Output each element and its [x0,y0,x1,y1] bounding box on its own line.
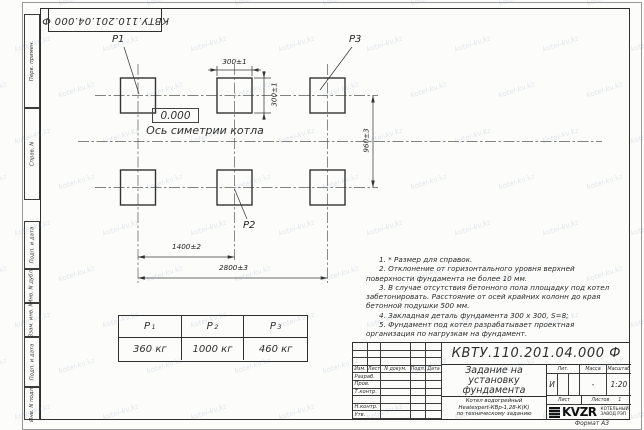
sig-row-nkontr: Н.контр. [353,404,381,412]
sig-row-razrab: Разраб. [353,373,381,381]
sig-cell [411,396,426,404]
company-logo-cell: KVZR КОТЕЛЬНЫЙ ЗАВОД РЭП [547,405,631,419]
doc-subtitle-line: Котел водогрейный [466,398,523,405]
revision-cell [411,343,426,351]
revision-cell [368,343,381,351]
sig-cell [381,389,411,397]
doc-title-line: установку [468,376,519,386]
sheets-label: Листов [591,398,609,403]
sig-row-tkontr: Т.контр. [353,389,381,397]
doc-subtitle-line: Heatexpert-КВр-1,28-К(К) [458,405,529,412]
load-symbol: Р [207,321,213,332]
revision-cell [426,351,442,359]
load-table-value-cell: 460 кг [244,338,307,360]
sheet-count-row: Лист Листов 1 [547,396,631,405]
dim-label-pad-width: 300±1 [207,57,262,66]
pad-label-p1: Р1 [112,34,124,45]
note-item: 1. * Размер для справок. [366,255,624,264]
load-table-header-cell: Р3 [244,316,307,338]
load-symbol-sub: 3 [277,323,281,331]
lit-value-cell: И [547,374,558,395]
revision-table: Изм. Лист N докум. Подп. Дата Разраб. Пр… [353,343,442,419]
kvzr-logo-text: KVZR [562,405,597,419]
sig-row-utv: Утв. [353,411,381,419]
sig-row-empty [353,396,381,404]
notes-block: 1. * Размер для справок. 2. Отклонение о… [366,255,624,339]
drawing-sheet: Перв. примен. Справ. N Подп. и дата Инв.… [0,0,644,430]
column-header-data: Дата [426,366,442,374]
sig-row-prov: Пров. [353,381,381,389]
sig-cell [381,396,411,404]
sig-cell [426,396,442,404]
load-table: Р1 Р2 Р3 360 кг 1000 кг 460 кг [118,315,308,362]
pad-label-p3: Р3 [349,34,361,45]
load-symbol-sub: 2 [214,323,218,331]
sig-cell [426,404,442,412]
sig-cell [411,389,426,397]
column-header-list: Лист [368,366,381,374]
sheets-value: 1 [618,398,621,403]
axis-of-symmetry-label: Ось симетрии котла [130,124,280,137]
format-label: Формат А3 [552,420,632,427]
dim-label-pad-height: 300±1 [270,68,279,122]
sig-cell [411,404,426,412]
load-table-header-cell: Р1 [119,316,182,338]
revision-cell [381,343,411,351]
sig-cell [381,411,411,419]
column-header-podp: Подп. [411,366,426,374]
company-name-line: ЗАВОД РЭП [601,412,629,417]
column-header-ndokum: N докум. [381,366,411,374]
level-mark-box: 0.000 [152,108,199,123]
load-symbol: Р [144,321,150,332]
revision-cell [411,351,426,359]
revision-cell [353,343,368,351]
revision-cell [426,343,442,351]
sig-cell [411,373,426,381]
title-block: Изм. Лист N докум. Подп. Дата Разраб. Пр… [352,342,630,420]
sig-cell [426,381,442,389]
dim-label-total-span: 2800±3 [206,263,261,272]
revision-cell [368,358,381,366]
sig-cell [426,411,442,419]
note-item: 3. В случае отсутствия бетонного пола пл… [366,283,624,311]
pad-label-p2: Р2 [243,220,255,231]
lit-mass-scale-values: И - 1:20 [547,374,631,396]
scale-label: Масштаб [607,365,631,373]
load-table-value-cell: 1000 кг [182,338,245,360]
dim-label-col-spacing: 1400±2 [159,242,214,251]
revision-cell [381,358,411,366]
sig-cell [381,404,411,412]
load-table-header-cell: Р2 [182,316,245,338]
revision-cell [368,351,381,359]
revision-cell [353,358,368,366]
dim-label-row-spacing: 960±3 [362,114,371,168]
doc-subtitle-line: по техническому заданию [457,411,532,418]
scale-value-cell: 1:20 [607,374,631,395]
load-symbol: Р [270,321,276,332]
load-symbol-sub: 1 [152,323,156,331]
doc-title-line: Задание на [465,366,523,376]
sig-cell [411,381,426,389]
sig-cell [426,389,442,397]
doc-title-cell: Задание на установку фундамента [442,365,546,397]
doc-title-line: фундамента [463,386,526,396]
note-item: 4. Закладная деталь фундамента 300 х 300… [366,311,624,320]
designation-cell: КВТУ.110.201.04.000 Ф [442,343,631,365]
lit-value-cell-3 [569,374,580,395]
lit-mass-scale-header: Лит. Масса Масштаб [547,365,631,374]
load-table-value-cell: 360 кг [119,338,182,360]
centerlines [78,64,602,283]
note-item: 2. Отклонение от горизонтального уровня … [366,264,624,283]
sig-cell [381,381,411,389]
lit-value-cell-2 [558,374,569,395]
revision-cell [426,358,442,366]
sig-cell [381,373,411,381]
doc-subtitle-cell: Котел водогрейный Heatexpert-КВр-1,28-К(… [442,397,546,419]
mass-value-cell: - [580,374,607,395]
revision-cell [381,351,411,359]
kvzr-logo-icon [549,407,560,418]
column-header-izm: Изм. [353,366,368,374]
level-mark-text: 0.000 [160,110,190,122]
sig-cell [411,411,426,419]
revision-cell [411,358,426,366]
note-item: 5. Фундамент под котел разрабатывает про… [366,320,624,339]
revision-cell [353,351,368,359]
mass-label: Масса [580,365,607,373]
lit-label: Лит. [547,365,580,373]
sheet-label: Лист [547,396,582,404]
company-name: КОТЕЛЬНЫЙ ЗАВОД РЭП [601,407,629,417]
sig-cell [426,373,442,381]
